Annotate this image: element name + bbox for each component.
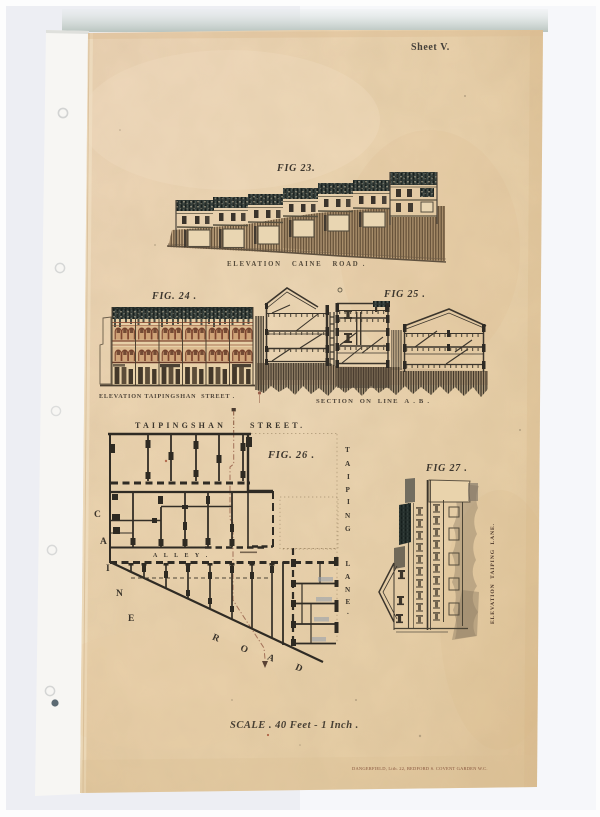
svg-text:ELEVATION CAINE ROAD .: ELEVATION CAINE ROAD . (227, 261, 366, 268)
svg-text:SCALE . 40 Feet - 1 Inch .: SCALE . 40 Feet - 1 Inch . (230, 720, 359, 731)
svg-text:T: T (345, 446, 350, 454)
svg-text:TAIPINGSHAN: TAIPINGSHAN (135, 421, 226, 430)
svg-text:G: G (345, 525, 351, 533)
svg-text:E: E (346, 598, 351, 606)
svg-text:N: N (345, 512, 351, 520)
svg-text:ELEVATION TAIPING LANE.: ELEVATION TAIPING LANE. (490, 523, 496, 624)
svg-text:FIG. 24 .: FIG. 24 . (151, 291, 197, 302)
svg-text:C: C (94, 510, 101, 520)
svg-text:L: L (346, 560, 351, 568)
svg-text:FIG 25 .: FIG 25 . (383, 289, 426, 300)
svg-text:ELEVATION TAIPINGSHAN STREET: ELEVATION TAIPINGSHAN STREET . (99, 393, 235, 400)
svg-text:.: . (347, 608, 349, 616)
svg-text:STREET.: STREET. (250, 421, 305, 430)
svg-text:A L L E Y .: A L L E Y . (153, 553, 210, 559)
svg-text:N: N (345, 586, 351, 594)
svg-text:N: N (116, 589, 123, 599)
svg-text:I: I (347, 498, 350, 506)
svg-text:A: A (100, 537, 107, 547)
svg-text:SECTION ON LINE A . B .: SECTION ON LINE A . B . (316, 398, 430, 405)
svg-text:FIG. 26 .: FIG. 26 . (267, 450, 315, 461)
svg-text:FIG 23.: FIG 23. (276, 163, 315, 174)
svg-text:A: A (345, 573, 351, 581)
svg-text:P: P (346, 486, 351, 494)
svg-text:I: I (106, 564, 110, 574)
svg-text:FIG 27 .: FIG 27 . (425, 463, 468, 474)
svg-text:A: A (345, 460, 351, 468)
svg-text:Sheet V.: Sheet V. (411, 42, 450, 53)
svg-text:E: E (128, 614, 134, 624)
svg-text:I: I (347, 473, 350, 481)
